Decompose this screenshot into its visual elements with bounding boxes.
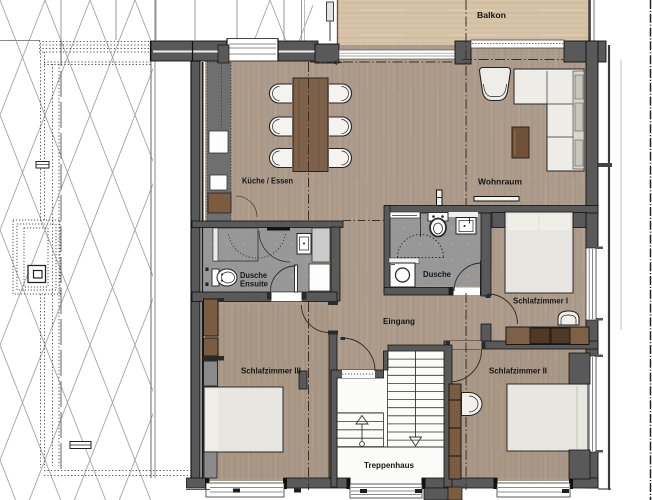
- svg-text:Dusche: Dusche: [423, 269, 451, 279]
- svg-text:Küche / Essen: Küche / Essen: [242, 176, 293, 186]
- svg-text:Wohnraum: Wohnraum: [478, 177, 522, 187]
- svg-text:Schlafzimmer III: Schlafzimmer III: [241, 366, 301, 376]
- svg-text:Schlafzimmer II: Schlafzimmer II: [489, 366, 547, 376]
- svg-text:Ensuite: Ensuite: [240, 279, 268, 289]
- svg-text:Treppenhaus: Treppenhaus: [364, 460, 414, 470]
- svg-text:Eingang: Eingang: [383, 316, 415, 326]
- svg-text:Balkon: Balkon: [477, 10, 506, 20]
- svg-text:Schlafzimmer I: Schlafzimmer I: [513, 296, 568, 306]
